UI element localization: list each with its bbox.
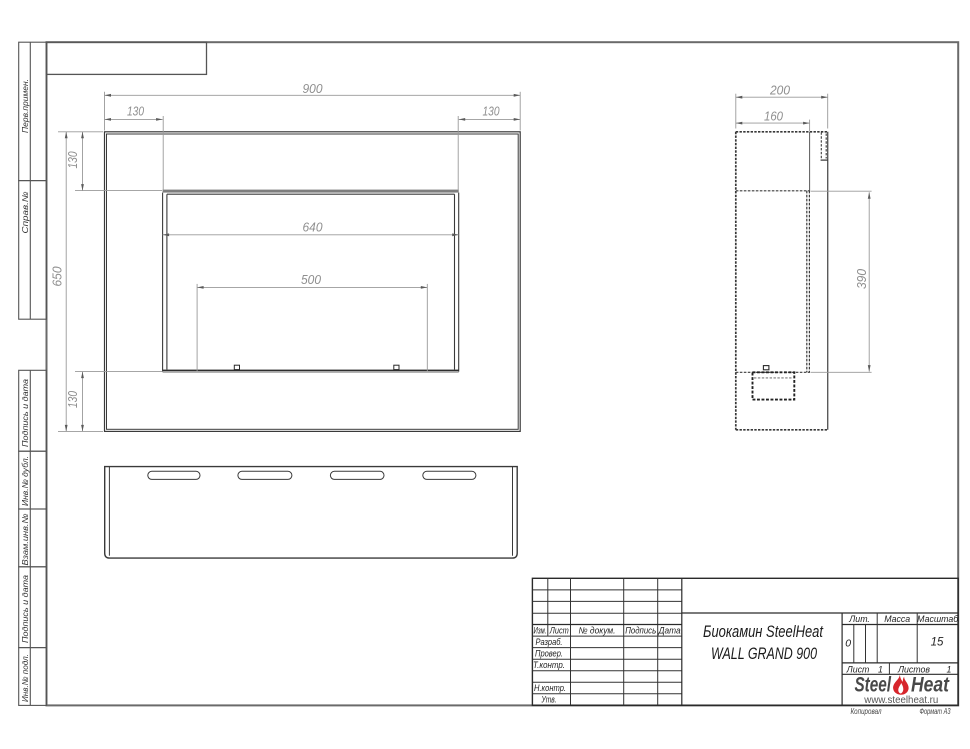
svg-text:130: 130 — [127, 104, 145, 119]
svg-text:Провер.: Провер. — [535, 648, 563, 658]
svg-text:Инв.№ подл.: Инв.№ подл. — [20, 654, 30, 702]
svg-text:650: 650 — [50, 266, 65, 287]
svg-text:500: 500 — [301, 272, 322, 287]
svg-text:640: 640 — [303, 220, 324, 235]
svg-text:Формат А3: Формат А3 — [920, 706, 951, 716]
svg-text:Лист: Лист — [549, 625, 569, 635]
svg-text:Масштаб: Масштаб — [917, 614, 959, 624]
svg-text:200: 200 — [769, 83, 791, 98]
svg-text:WALL GRAND 900: WALL GRAND 900 — [711, 645, 818, 663]
svg-text:15: 15 — [931, 637, 944, 649]
svg-text:Взам.инв.№: Взам.инв.№ — [20, 514, 30, 566]
svg-text:Подпись и дата: Подпись и дата — [20, 575, 30, 643]
svg-text:Биокамин SteelHeat: Биокамин SteelHeat — [703, 623, 824, 641]
svg-text:Подпись: Подпись — [625, 625, 656, 635]
svg-text:130: 130 — [483, 104, 501, 119]
svg-text:Дата: Дата — [658, 625, 681, 635]
svg-text:Утв.: Утв. — [541, 695, 557, 705]
svg-text:№ докум.: № докум. — [579, 625, 616, 635]
svg-text:Копировал: Копировал — [851, 706, 882, 716]
svg-text:0: 0 — [845, 638, 851, 650]
svg-text:Перв.примен.: Перв.примен. — [20, 79, 30, 133]
svg-text:160: 160 — [764, 108, 784, 123]
svg-text:900: 900 — [303, 81, 324, 96]
svg-text:Разраб.: Разраб. — [536, 637, 563, 647]
svg-text:Н.контр.: Н.контр. — [534, 683, 566, 693]
svg-text:Т.контр.: Т.контр. — [533, 660, 565, 670]
svg-text:www.steelheat.ru: www.steelheat.ru — [863, 694, 938, 706]
svg-text:130: 130 — [65, 390, 80, 408]
svg-text:Изм.: Изм. — [534, 625, 547, 635]
svg-text:390: 390 — [854, 268, 869, 289]
svg-text:Справ.№: Справ.№ — [20, 192, 30, 234]
svg-text:Масса: Масса — [884, 614, 910, 624]
svg-text:Инв.№ дубл.: Инв.№ дубл. — [20, 456, 30, 506]
svg-text:130: 130 — [65, 151, 80, 169]
svg-text:Подпись и дата: Подпись и дата — [20, 379, 30, 447]
svg-text:Лит.: Лит. — [848, 614, 870, 624]
